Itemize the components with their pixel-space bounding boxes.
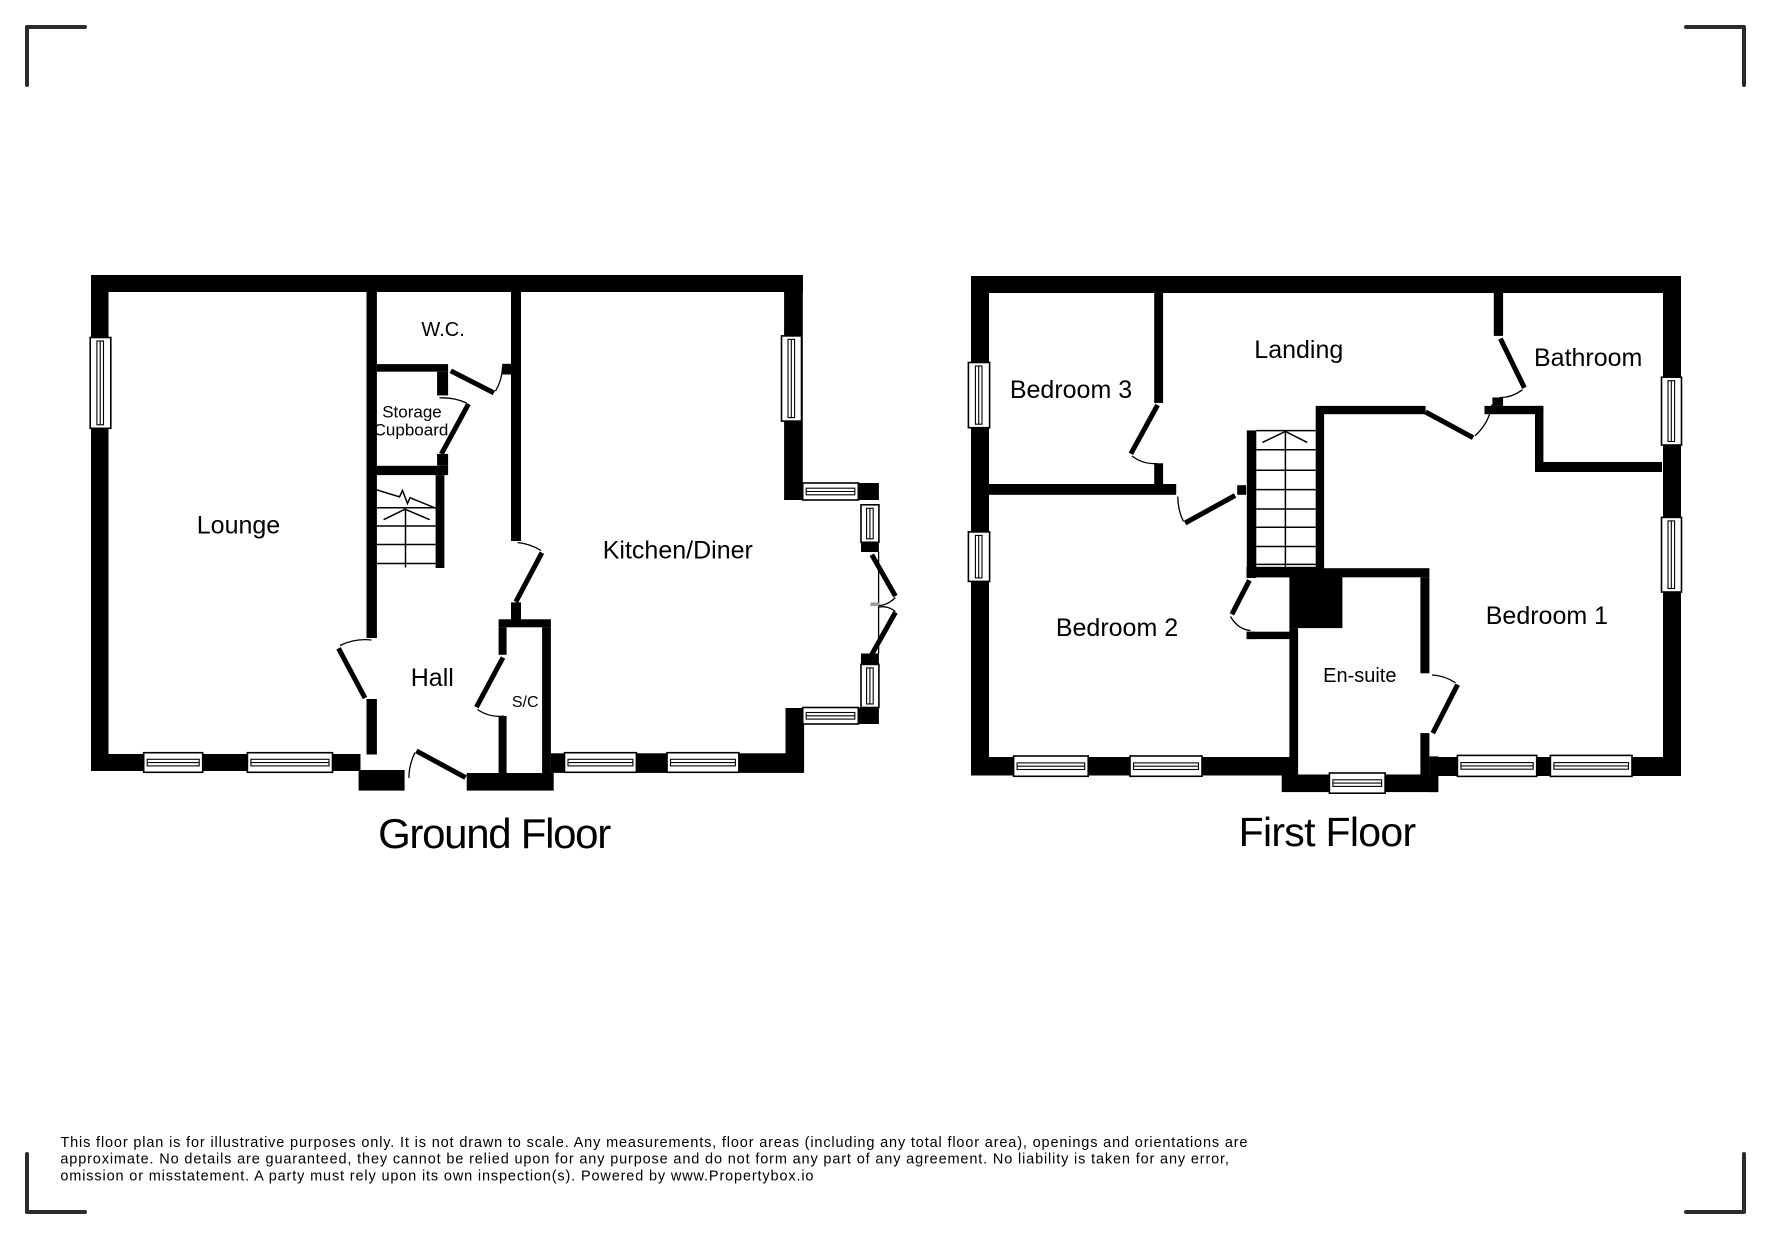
svg-text:omission or misstatement. A pa: omission or misstatement. A party must r…	[60, 1169, 814, 1185]
svg-text:Storage: Storage	[382, 403, 442, 422]
svg-text:W.C.: W.C.	[421, 319, 464, 341]
svg-text:Ground Floor: Ground Floor	[378, 810, 611, 857]
svg-text:En-suite: En-suite	[1323, 665, 1396, 687]
svg-text:Bedroom 1: Bedroom 1	[1486, 602, 1608, 630]
svg-text:S/C: S/C	[512, 694, 539, 711]
svg-text:Lounge: Lounge	[197, 511, 280, 539]
svg-text:Hall: Hall	[411, 664, 454, 692]
svg-text:Kitchen/Diner: Kitchen/Diner	[603, 537, 753, 565]
svg-text:Bedroom 3: Bedroom 3	[1010, 376, 1132, 404]
svg-text:Landing: Landing	[1254, 336, 1343, 364]
svg-text:approximate. No details are gu: approximate. No details are guaranteed, …	[60, 1152, 1229, 1168]
svg-text:Bathroom: Bathroom	[1534, 344, 1642, 372]
svg-text:Cupboard: Cupboard	[374, 420, 449, 439]
svg-text:First Floor: First Floor	[1239, 809, 1416, 855]
svg-text:This floor plan is for illustr: This floor plan is for illustrative purp…	[60, 1135, 1248, 1151]
svg-text:Bedroom 2: Bedroom 2	[1056, 614, 1178, 642]
